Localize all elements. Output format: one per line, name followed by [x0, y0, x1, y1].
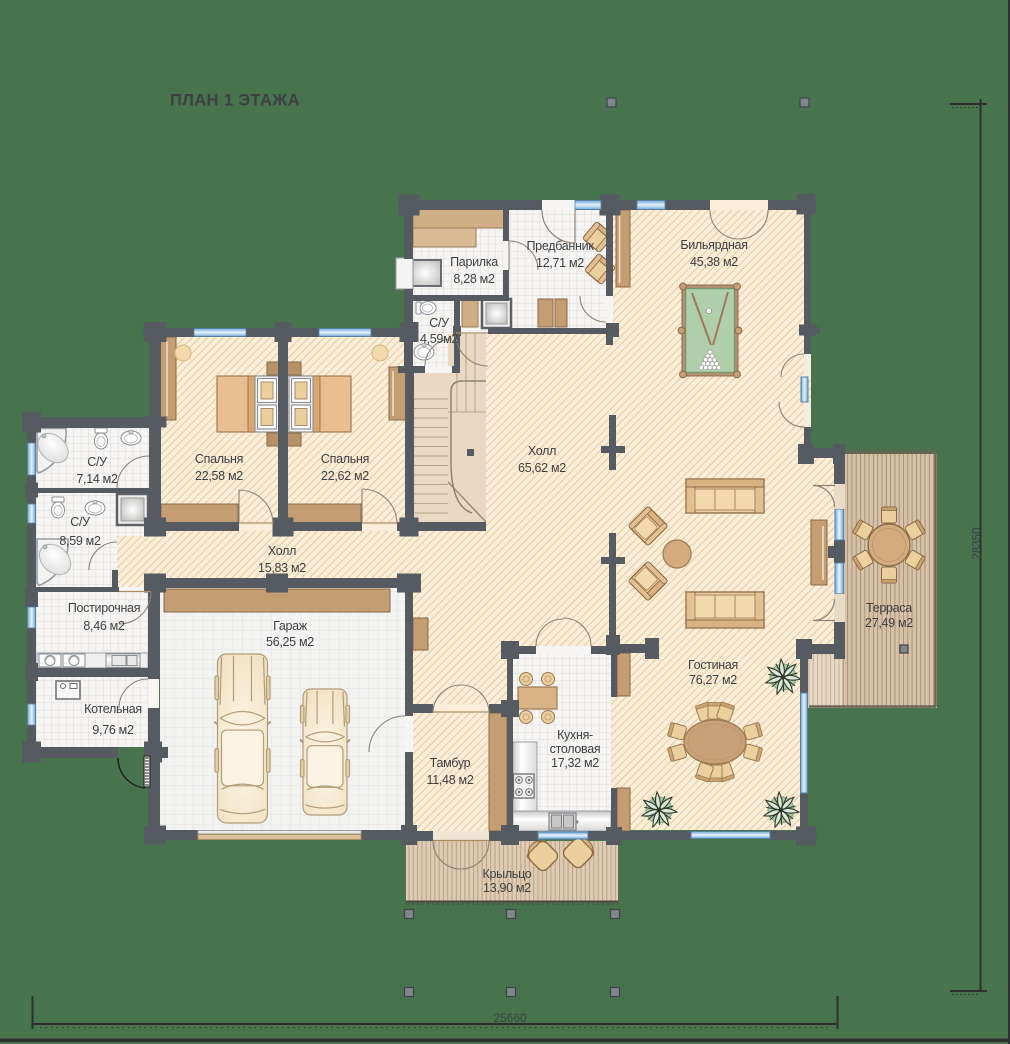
- svg-text:12,71 м2: 12,71 м2: [536, 256, 584, 270]
- svg-text:Спальня: Спальня: [321, 452, 369, 466]
- svg-text:11,48 м2: 11,48 м2: [427, 773, 474, 787]
- svg-text:27,49 м2: 27,49 м2: [865, 616, 913, 630]
- svg-text:Предбанник: Предбанник: [527, 239, 595, 253]
- svg-text:Кухня-: Кухня-: [557, 728, 593, 742]
- svg-text:4,59м2: 4,59м2: [420, 332, 458, 346]
- svg-text:8,28 м2: 8,28 м2: [453, 272, 495, 286]
- svg-text:45,38 м2: 45,38 м2: [690, 255, 738, 269]
- svg-text:ПЛАН 1 ЭТАЖА: ПЛАН 1 ЭТАЖА: [170, 92, 300, 110]
- svg-text:7,14 м2: 7,14 м2: [76, 472, 118, 486]
- svg-text:17,32 м2: 17,32 м2: [551, 756, 599, 770]
- svg-text:Спальня: Спальня: [195, 452, 243, 466]
- svg-text:28350: 28350: [972, 528, 984, 560]
- svg-text:8,46 м2: 8,46 м2: [83, 619, 125, 633]
- svg-text:22,58 м2: 22,58 м2: [195, 469, 243, 483]
- svg-text:8,59 м2: 8,59 м2: [59, 534, 101, 548]
- svg-text:22,62 м2: 22,62 м2: [321, 469, 369, 483]
- svg-text:15,83 м2: 15,83 м2: [258, 561, 306, 575]
- svg-text:С/У: С/У: [70, 515, 90, 529]
- svg-text:13,90 м2: 13,90 м2: [483, 881, 531, 895]
- svg-text:Котельная: Котельная: [84, 702, 142, 716]
- svg-text:Холл: Холл: [268, 544, 296, 558]
- svg-text:С/У: С/У: [87, 455, 107, 469]
- svg-text:76,27 м2: 76,27 м2: [689, 673, 737, 687]
- svg-text:56,25 м2: 56,25 м2: [266, 635, 314, 649]
- svg-text:Гостиная: Гостиная: [688, 658, 738, 672]
- svg-text:Терраса: Терраса: [866, 601, 912, 615]
- svg-text:25660: 25660: [493, 1011, 527, 1025]
- svg-text:Тамбур: Тамбур: [430, 756, 471, 770]
- svg-text:Гараж: Гараж: [273, 619, 308, 633]
- svg-text:Парилка: Парилка: [450, 255, 498, 269]
- svg-text:Крыльцо: Крыльцо: [483, 867, 532, 881]
- svg-text:9,76 м2: 9,76 м2: [92, 723, 134, 737]
- svg-text:С/У: С/У: [429, 316, 449, 330]
- svg-text:столовая: столовая: [550, 742, 601, 756]
- svg-text:65,62 м2: 65,62 м2: [518, 461, 566, 475]
- svg-text:Постирочная: Постирочная: [68, 601, 140, 615]
- svg-text:Бильярдная: Бильярдная: [680, 238, 747, 252]
- svg-text:Холл: Холл: [528, 444, 556, 458]
